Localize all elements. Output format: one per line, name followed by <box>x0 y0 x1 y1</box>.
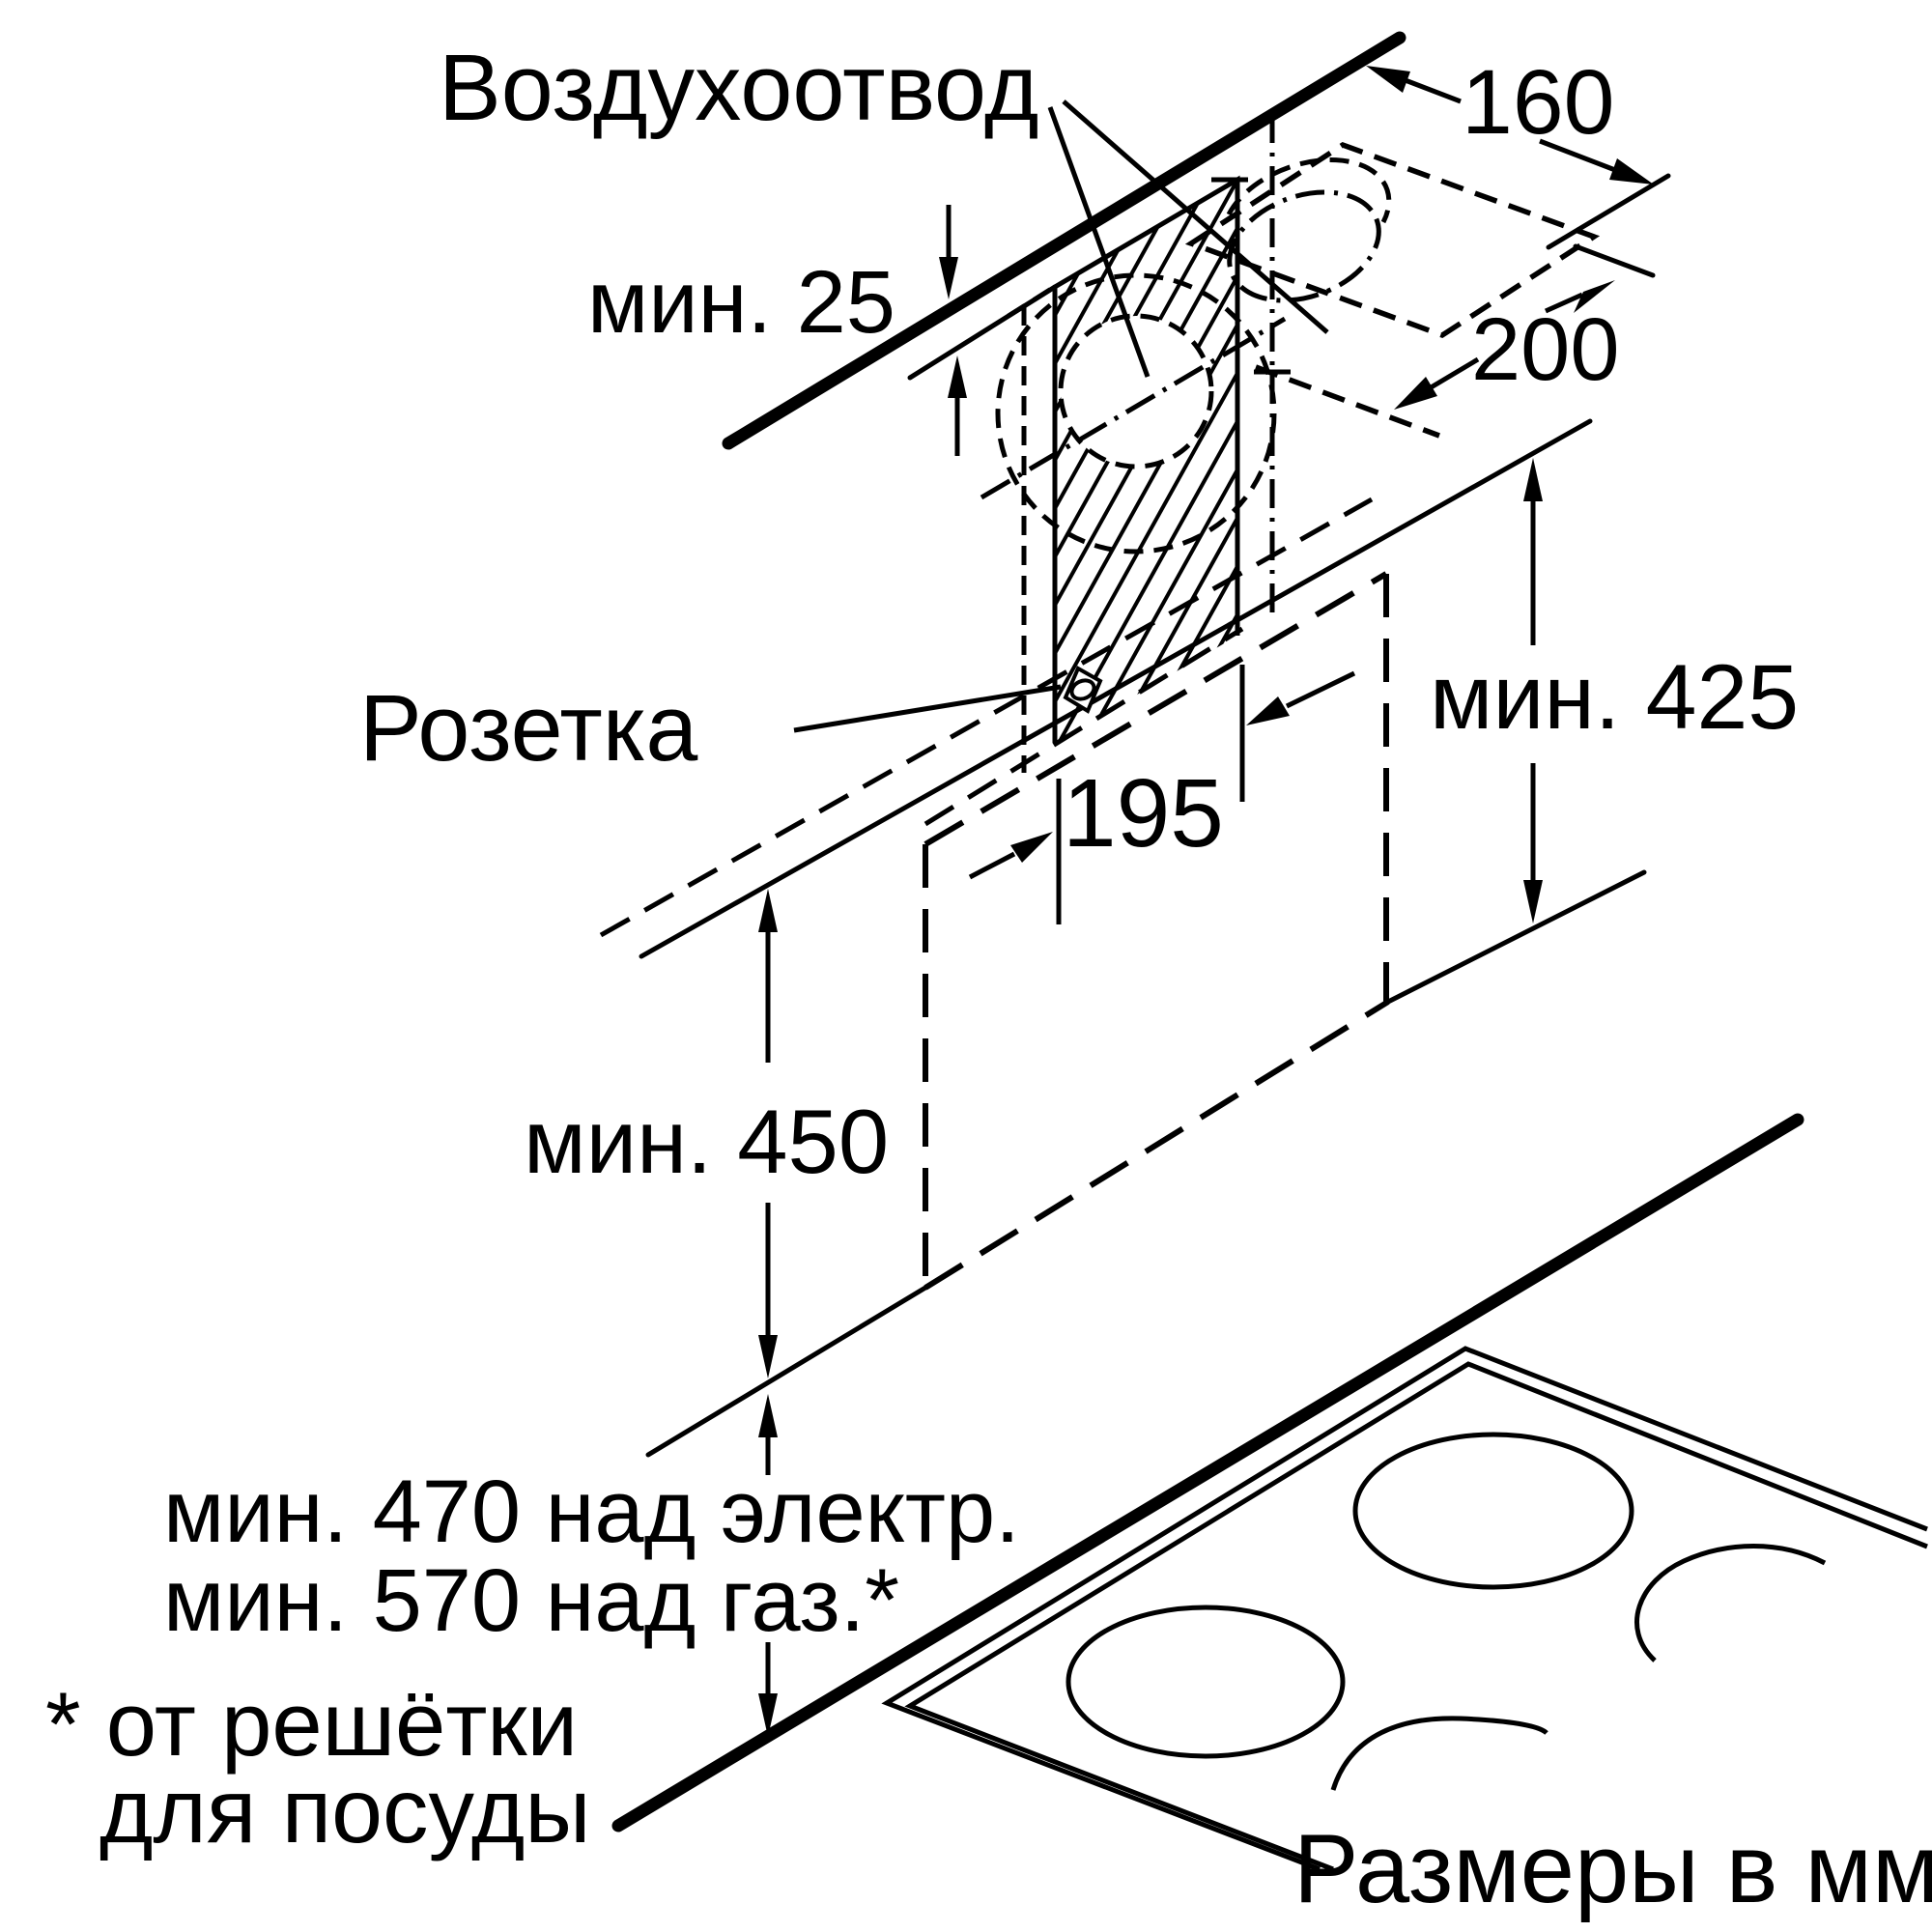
svg-text:мин. 570 над газ.*: мин. 570 над газ.* <box>163 1551 899 1650</box>
svg-text:Розетка: Розетка <box>359 675 697 781</box>
svg-text:Размеры в мм: Размеры в мм <box>1293 1815 1932 1923</box>
svg-text:мин. 470 над электр.: мин. 470 над электр. <box>163 1463 1020 1561</box>
svg-text:мин. 425: мин. 425 <box>1430 646 1799 749</box>
svg-text:160: 160 <box>1462 51 1615 154</box>
svg-text:мин. 25: мин. 25 <box>587 253 895 352</box>
svg-text:для посуды: для посуды <box>99 1760 591 1862</box>
svg-text:Воздухоотвод: Воздухоотвод <box>439 35 1038 140</box>
svg-text:200: 200 <box>1471 300 1620 399</box>
svg-text:195: 195 <box>1063 759 1224 867</box>
svg-text:мин. 450: мин. 450 <box>524 1091 889 1192</box>
